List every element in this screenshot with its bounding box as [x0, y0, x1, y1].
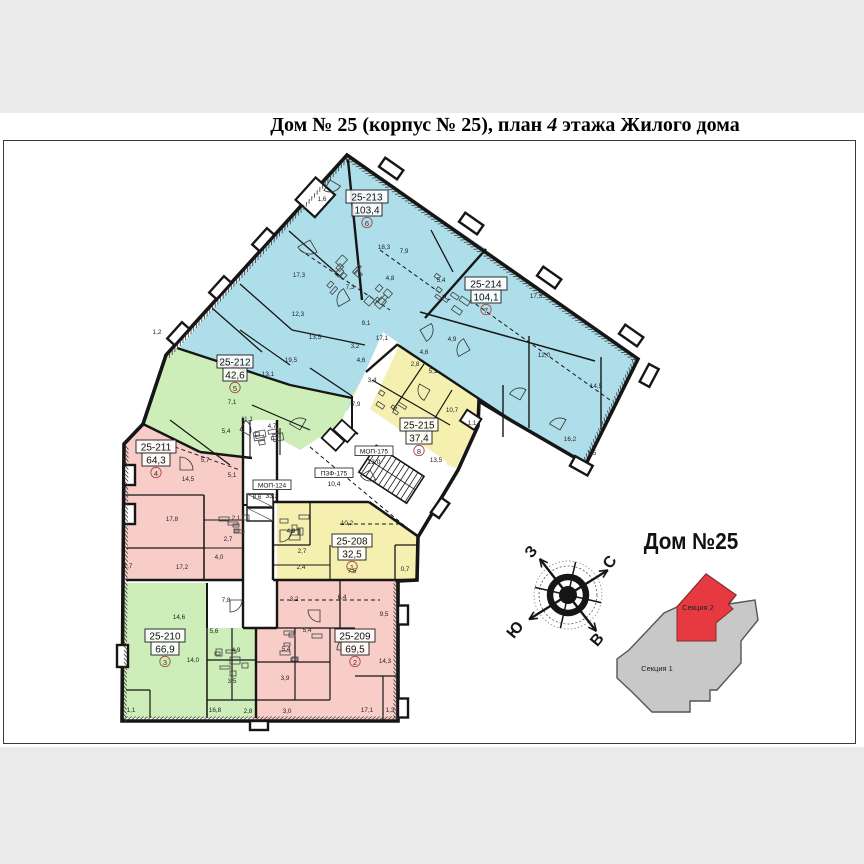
- svg-text:9,1: 9,1: [362, 320, 371, 327]
- svg-text:5,1: 5,1: [228, 472, 237, 479]
- svg-text:ПЗФ-175: ПЗФ-175: [321, 471, 348, 478]
- svg-text:19,5: 19,5: [285, 357, 298, 364]
- svg-text:25-209: 25-209: [339, 632, 371, 643]
- svg-text:13,0: 13,0: [368, 459, 381, 466]
- svg-text:2,8: 2,8: [411, 361, 420, 368]
- svg-text:1,3: 1,3: [386, 707, 395, 714]
- svg-text:Ю: Ю: [504, 618, 528, 642]
- svg-text:2,4: 2,4: [297, 564, 306, 571]
- svg-text:3,2: 3,2: [351, 343, 360, 350]
- svg-text:103,4: 103,4: [354, 206, 379, 217]
- svg-text:3,9: 3,9: [281, 675, 290, 682]
- svg-text:14,5: 14,5: [182, 476, 195, 483]
- svg-text:В: В: [587, 630, 607, 650]
- svg-text:1,7: 1,7: [124, 563, 133, 570]
- svg-text:10,4: 10,4: [328, 481, 341, 488]
- svg-text:1,6: 1,6: [318, 196, 327, 203]
- svg-text:16,2: 16,2: [564, 436, 577, 443]
- svg-text:7: 7: [484, 306, 488, 315]
- svg-text:25-214: 25-214: [470, 280, 502, 291]
- svg-text:2,8: 2,8: [244, 708, 253, 715]
- svg-text:Секция 2: Секция 2: [682, 603, 714, 612]
- svg-text:3,4: 3,4: [368, 377, 377, 384]
- svg-text:17,1: 17,1: [361, 707, 374, 714]
- svg-text:7,3: 7,3: [346, 284, 355, 291]
- svg-text:17,3: 17,3: [293, 272, 306, 279]
- svg-text:5,4: 5,4: [437, 277, 446, 284]
- svg-text:32,5: 32,5: [342, 550, 362, 561]
- svg-text:13,5: 13,5: [309, 334, 322, 341]
- svg-text:4,9: 4,9: [448, 336, 457, 343]
- svg-text:13,5: 13,5: [430, 457, 443, 464]
- svg-text:17,2: 17,2: [176, 564, 189, 571]
- svg-text:4,7: 4,7: [268, 423, 277, 430]
- svg-text:33,2: 33,2: [266, 493, 279, 500]
- svg-text:25-208: 25-208: [336, 537, 368, 548]
- svg-text:1,1: 1,1: [468, 420, 477, 427]
- svg-text:5,4: 5,4: [303, 627, 312, 634]
- svg-text:З: З: [522, 543, 541, 562]
- svg-text:Дом №25: Дом №25: [644, 528, 739, 554]
- svg-text:3,2: 3,2: [290, 596, 299, 603]
- svg-text:8: 8: [417, 447, 421, 456]
- svg-text:25-211: 25-211: [141, 443, 172, 454]
- svg-text:7,1: 7,1: [228, 399, 237, 406]
- svg-text:37,4: 37,4: [409, 434, 429, 445]
- svg-text:17,8: 17,8: [166, 516, 179, 523]
- svg-text:17,1: 17,1: [376, 335, 389, 342]
- svg-text:8,6: 8,6: [253, 494, 262, 501]
- svg-text:7,9: 7,9: [400, 248, 409, 255]
- svg-text:14,3: 14,3: [379, 658, 392, 665]
- svg-text:7,5: 7,5: [348, 568, 357, 575]
- svg-text:5: 5: [233, 384, 237, 393]
- svg-text:104,1: 104,1: [473, 293, 498, 304]
- svg-text:4,6: 4,6: [420, 349, 429, 356]
- svg-text:3: 3: [163, 658, 167, 667]
- svg-text:25-213: 25-213: [351, 193, 383, 204]
- svg-text:10,2: 10,2: [341, 520, 354, 527]
- svg-text:5,7: 5,7: [201, 457, 210, 464]
- svg-text:69,5: 69,5: [345, 645, 365, 656]
- svg-text:12,3: 12,3: [292, 311, 305, 318]
- svg-text:6,4: 6,4: [338, 594, 347, 601]
- svg-text:4,6: 4,6: [357, 357, 366, 364]
- svg-text:14,0: 14,0: [187, 657, 200, 664]
- svg-text:2,7: 2,7: [298, 548, 307, 555]
- svg-text:14,6: 14,6: [173, 614, 186, 621]
- svg-text:16,8: 16,8: [209, 707, 222, 714]
- svg-text:66,9: 66,9: [155, 645, 175, 656]
- svg-text:Секция 1: Секция 1: [641, 664, 673, 673]
- svg-text:42,6: 42,6: [225, 371, 245, 382]
- svg-text:17,3: 17,3: [530, 293, 543, 300]
- svg-text:64,3: 64,3: [146, 456, 166, 467]
- svg-text:10,7: 10,7: [446, 407, 459, 414]
- svg-text:5,6: 5,6: [210, 628, 219, 635]
- svg-text:25-212: 25-212: [219, 358, 251, 369]
- svg-text:1,5: 1,5: [588, 450, 597, 457]
- svg-text:7,9: 7,9: [352, 401, 361, 408]
- svg-text:25-210: 25-210: [149, 632, 181, 643]
- svg-text:25-215: 25-215: [403, 421, 435, 432]
- svg-text:4: 4: [154, 469, 158, 478]
- svg-text:9,5: 9,5: [380, 611, 389, 618]
- svg-text:5,1: 5,1: [429, 368, 438, 375]
- svg-text:18,3: 18,3: [378, 244, 391, 251]
- svg-text:11,1: 11,1: [241, 416, 253, 423]
- svg-text:14,5: 14,5: [590, 383, 603, 390]
- svg-text:2: 2: [353, 658, 357, 667]
- svg-text:7,8: 7,8: [222, 597, 231, 604]
- svg-text:1,2: 1,2: [153, 329, 162, 336]
- svg-text:4,9: 4,9: [232, 647, 241, 654]
- svg-text:5,4: 5,4: [222, 428, 231, 435]
- svg-text:2,1: 2,1: [232, 515, 241, 522]
- svg-text:4,8: 4,8: [386, 275, 395, 282]
- svg-text:6: 6: [365, 219, 369, 228]
- svg-text:5,4: 5,4: [282, 646, 291, 653]
- svg-text:12,0: 12,0: [538, 352, 551, 359]
- svg-text:МОП-175: МОП-175: [360, 449, 389, 456]
- svg-text:0,7: 0,7: [401, 566, 410, 573]
- svg-text:2,7: 2,7: [224, 536, 233, 543]
- svg-text:С: С: [600, 552, 621, 572]
- svg-text:3,5: 3,5: [228, 678, 237, 685]
- svg-text:4,0: 4,0: [215, 554, 224, 561]
- svg-text:3,0: 3,0: [283, 708, 292, 715]
- svg-text:МОП-124: МОП-124: [258, 483, 287, 490]
- svg-text:13,1: 13,1: [262, 371, 275, 378]
- svg-text:4,9: 4,9: [287, 528, 296, 535]
- svg-text:1,1: 1,1: [127, 707, 136, 714]
